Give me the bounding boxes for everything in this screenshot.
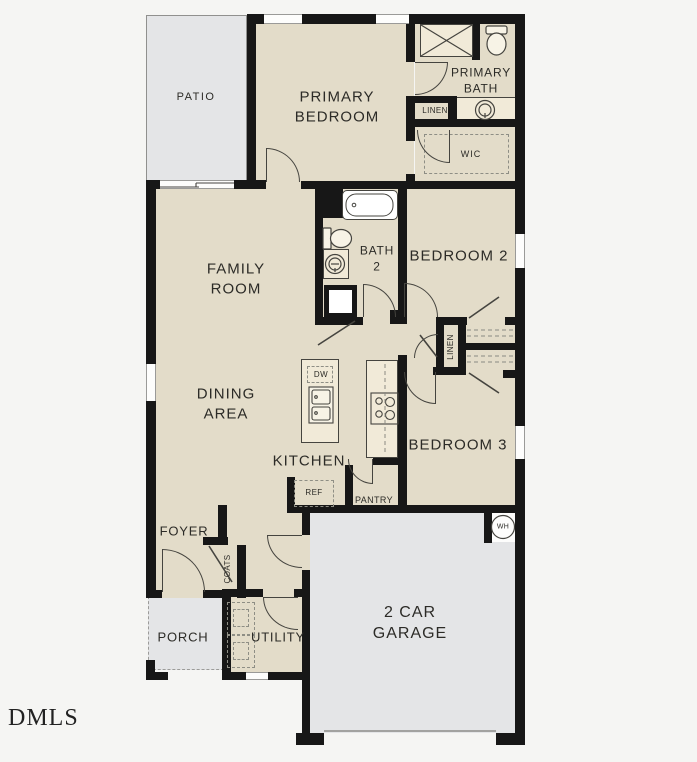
label-kitchen: KITCHEN bbox=[273, 451, 346, 471]
wall bbox=[222, 672, 246, 680]
wall bbox=[302, 14, 376, 24]
watermark-dmls: DMLS bbox=[8, 706, 79, 730]
window bbox=[264, 14, 302, 24]
washer-inner bbox=[233, 609, 249, 627]
wall bbox=[237, 545, 246, 598]
label-refrigerator: REF bbox=[305, 488, 322, 498]
wall bbox=[472, 22, 480, 60]
wall bbox=[496, 733, 525, 745]
wall bbox=[302, 570, 310, 735]
utility-back-door bbox=[246, 672, 268, 680]
label-linen-bath: LINEN bbox=[422, 106, 448, 116]
dryer-inner bbox=[233, 642, 249, 660]
wall bbox=[296, 733, 324, 745]
wall bbox=[462, 343, 515, 350]
kitchen-counter bbox=[366, 360, 398, 458]
label-patio: PATIO bbox=[177, 90, 216, 104]
wall bbox=[247, 14, 256, 184]
wall bbox=[315, 317, 363, 325]
bathtub bbox=[342, 190, 398, 220]
label-family-room: FAMILY ROOM bbox=[207, 260, 265, 299]
label-foyer: FOYER bbox=[160, 524, 209, 541]
wall bbox=[515, 459, 525, 745]
label-garage: 2 CAR GARAGE bbox=[373, 603, 447, 645]
media-niche bbox=[315, 188, 343, 218]
label-water-heater: WH bbox=[497, 522, 509, 531]
floor-plan-page: { "watermark": "DMLS", "colors": { "back… bbox=[0, 0, 697, 762]
shower bbox=[420, 24, 473, 57]
wall bbox=[146, 180, 156, 364]
window bbox=[515, 426, 525, 459]
label-bedroom3: BEDROOM 3 bbox=[408, 435, 507, 455]
wall bbox=[484, 513, 492, 543]
label-dishwasher: DW bbox=[314, 370, 328, 380]
wall bbox=[406, 174, 415, 184]
label-pantry: PANTRY bbox=[355, 495, 393, 507]
wall bbox=[503, 370, 515, 378]
label-wic: WIC bbox=[461, 149, 482, 161]
label-bath2: BATH 2 bbox=[360, 243, 394, 274]
label-primary-bath: PRIMARY BATH bbox=[451, 65, 511, 96]
wall bbox=[515, 268, 525, 426]
wall bbox=[229, 589, 263, 597]
wall bbox=[457, 119, 515, 127]
bath2-vanity bbox=[323, 249, 349, 279]
label-primary-bedroom: PRIMARY BEDROOM bbox=[295, 88, 380, 127]
window bbox=[146, 364, 156, 401]
window bbox=[376, 14, 409, 24]
label-coats: COATS bbox=[223, 555, 233, 584]
wall bbox=[146, 590, 162, 598]
wall bbox=[505, 317, 515, 325]
sliding-door bbox=[160, 180, 234, 189]
wall bbox=[448, 96, 457, 127]
wall bbox=[146, 672, 168, 680]
wall bbox=[515, 14, 525, 234]
wall bbox=[409, 14, 515, 24]
label-linen-hall: LINEN bbox=[446, 334, 456, 360]
primary-vanity bbox=[457, 97, 515, 119]
wall bbox=[406, 24, 415, 62]
wall bbox=[315, 218, 323, 317]
window bbox=[515, 234, 525, 268]
wall bbox=[433, 367, 466, 375]
wall bbox=[302, 513, 310, 535]
label-dining: DINING AREA bbox=[197, 385, 256, 424]
label-utility: UTILITY bbox=[251, 630, 305, 647]
label-bedroom2: BEDROOM 2 bbox=[409, 246, 508, 266]
wall bbox=[146, 401, 156, 592]
wall bbox=[398, 377, 407, 505]
garage-door-line bbox=[324, 730, 496, 732]
bath2-closet bbox=[324, 285, 357, 318]
wall bbox=[234, 180, 266, 189]
wall bbox=[436, 317, 467, 325]
label-porch: PORCH bbox=[158, 630, 209, 647]
